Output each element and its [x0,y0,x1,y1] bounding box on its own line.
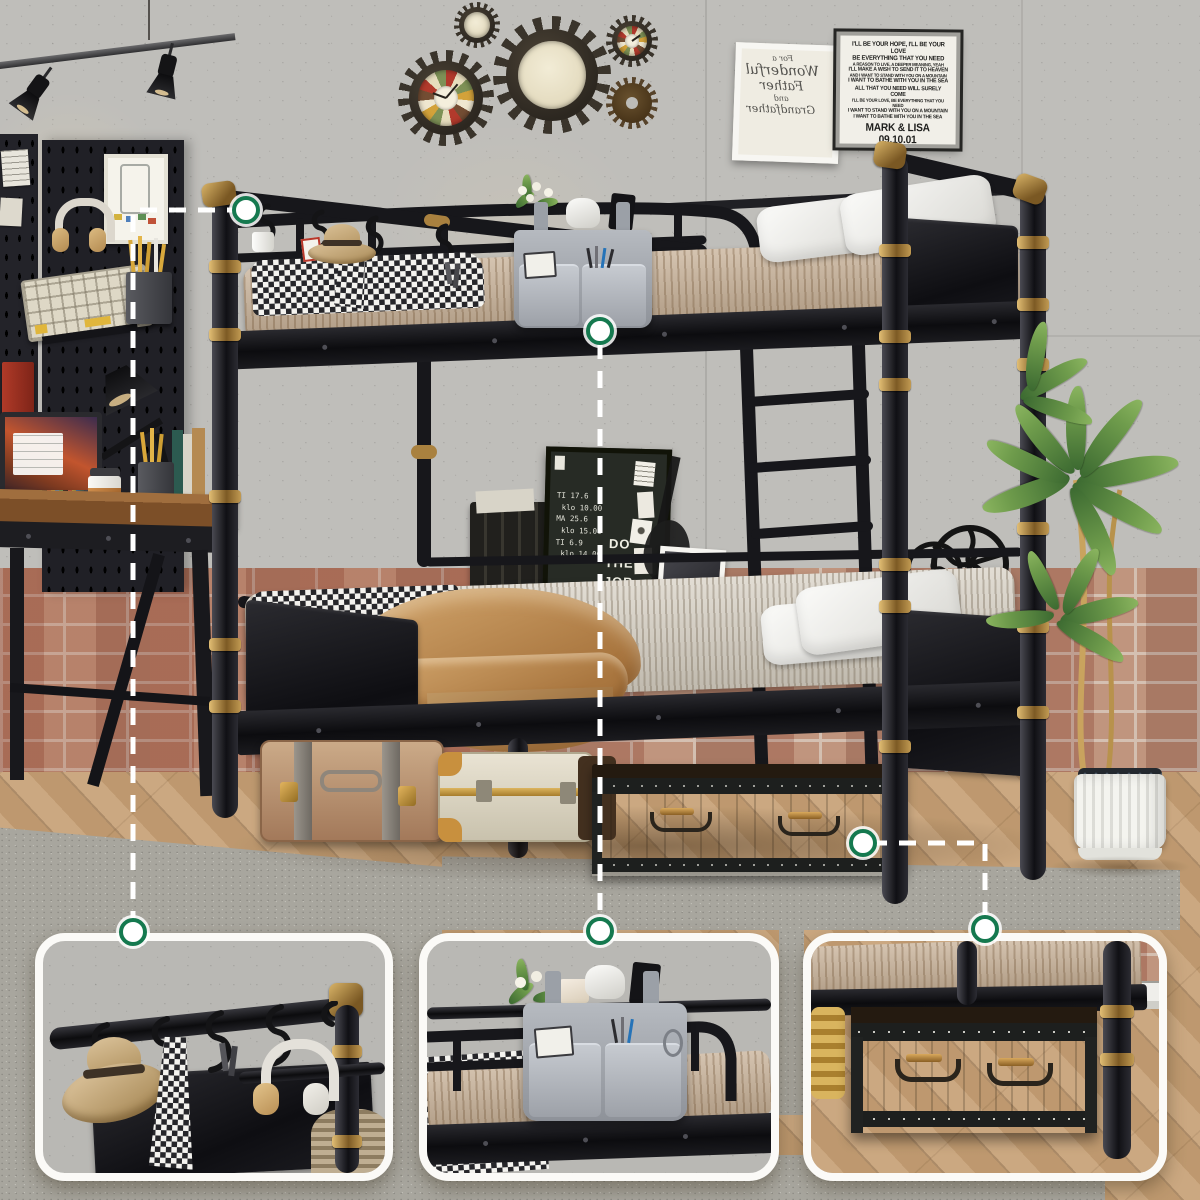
thumb-marker-drawer [971,915,999,943]
thumb-bed-leg [1103,941,1131,1159]
thumbnail-storage-caddy [419,933,779,1181]
feature-marker-hook-rail [232,196,260,224]
thumb-caddy [523,969,687,1129]
feature-marker-caddy [586,317,614,345]
callout-line-drawer [870,843,985,926]
thumb-marker-hook-rail [119,918,147,946]
thumb-keys [221,1043,239,1077]
callout-line-hook-rail [133,210,244,928]
feature-marker-drawer [849,829,877,857]
thumb-bed-leg [957,941,977,1005]
thumbnail-hook-rail [35,933,393,1181]
drawer-handle [987,1063,1053,1086]
thumb-gold-stool [811,1007,845,1099]
thumb-straw-hat [61,1037,167,1127]
thumb-headphones [255,1039,329,1135]
thumb-drawer [851,1007,1097,1133]
drawer-handle [895,1059,961,1082]
thumb-marker-caddy [586,917,614,945]
product-photo-scene: For a Wonderful Father and Grandfather I… [0,0,1200,1200]
thumbnail-underbed-drawer [803,933,1167,1181]
